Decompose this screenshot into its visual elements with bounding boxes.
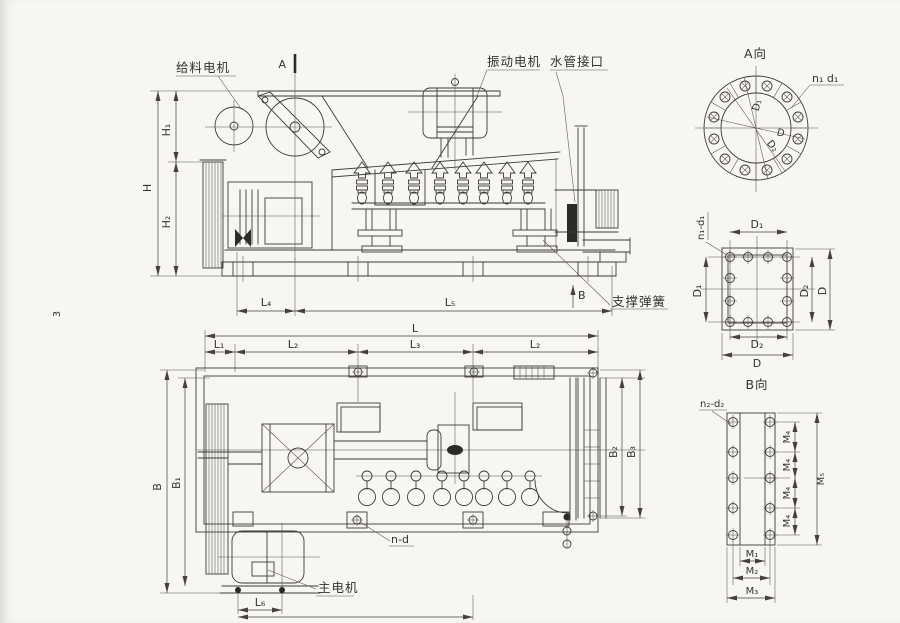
dim-B: B — [151, 483, 164, 491]
nozzle-row — [352, 162, 545, 209]
pipe-port-label: 水管接口 — [550, 54, 604, 69]
bolt-hole — [740, 81, 750, 91]
bolt-hole — [762, 81, 772, 91]
dim-D2-flange-a: D₂ — [764, 138, 780, 154]
nozzle — [406, 162, 422, 204]
side-elevation-view: A — [141, 54, 668, 316]
page-number: 3 — [52, 311, 63, 317]
bolt-hole — [723, 294, 737, 308]
nozzle — [476, 162, 492, 204]
bolt-hole — [793, 134, 803, 144]
dim-L6: L₆ — [255, 596, 266, 609]
dim-M5: M₅ — [816, 473, 827, 486]
section-line-a: A — [278, 54, 295, 260]
belt-guard — [200, 160, 226, 268]
vibration-motor-plan — [337, 403, 522, 473]
dim-M4: M₄ — [782, 431, 793, 444]
view-a-label: A向 — [744, 46, 767, 61]
dim-B2: B₂ — [607, 446, 620, 458]
dim-L: L — [412, 322, 419, 335]
holes-plan-label: n-d — [391, 533, 409, 546]
bolt-hole — [709, 112, 719, 122]
dim-D1-flange-a: D₁ — [751, 98, 765, 112]
bolt-hole — [761, 250, 775, 264]
drawing-sheet: A — [0, 0, 900, 623]
dim-M2: M₂ — [746, 566, 759, 577]
bolt-hole — [782, 92, 792, 102]
holes-plate-label: n₂-d₂ — [700, 399, 724, 410]
nozzle — [520, 162, 536, 204]
dim-M3: M₃ — [746, 586, 759, 597]
holes-flange-a-label: n₁ d₁ — [812, 72, 838, 85]
bolt-hole — [782, 154, 792, 164]
bolt-hole — [726, 501, 740, 515]
feeder-plan — [228, 424, 427, 492]
dim-D-flange-a: D — [776, 127, 786, 140]
dim-D1-left: D₁ — [691, 285, 704, 298]
section-b-label: B — [578, 289, 586, 302]
dim-D-bottom: D — [753, 357, 761, 370]
dim-L4: L₄ — [261, 296, 272, 309]
feed-motor-assembly — [205, 92, 332, 158]
dim-H2: H₂ — [160, 216, 173, 229]
discharge-end — [555, 126, 630, 262]
view-b-flange: n₁-d₁ D₁ D₁ D₂ D D₂ D B向 — [691, 212, 835, 392]
nozzle — [499, 162, 515, 204]
dim-H1: H₁ — [160, 124, 173, 137]
technical-drawing: A — [0, 0, 900, 623]
dim-L3: L₃ — [410, 338, 421, 351]
main-motor-label: 主电机 — [318, 580, 359, 595]
bolt-hole — [723, 250, 737, 264]
dim-M4: M₄ — [782, 487, 793, 500]
bolt-hole — [780, 315, 794, 329]
view-a-flange: A向 D₁ D D₂ n₁ d₁ — [695, 46, 844, 192]
bolt-hole — [726, 445, 740, 459]
bolt-hole — [761, 315, 775, 329]
base-frame — [222, 250, 616, 282]
bolt-hole — [726, 528, 740, 542]
dim-H: H — [141, 184, 154, 192]
bolt-hole — [709, 134, 719, 144]
vibration-motor-label: 振动电机 — [487, 54, 541, 69]
plan-top-dimensions: L L₁ L₂ L₃ L₂ — [205, 322, 598, 402]
bolt-hole — [720, 154, 730, 164]
mounting-tabs — [233, 366, 569, 528]
dim-D2-bottom: D₂ — [751, 338, 764, 351]
nozzle — [455, 162, 471, 204]
main-motor-plan: 主电机 — [218, 523, 359, 596]
bolt-hole — [723, 271, 737, 285]
dim-L2b: L₂ — [530, 338, 541, 351]
holes-flange-b-label: n₁-d₁ — [696, 216, 707, 240]
dim-M4: M₄ — [782, 515, 793, 528]
dim-B3: B₃ — [625, 446, 638, 458]
feed-hopper — [258, 91, 500, 205]
dim-D1-top: D₁ — [751, 218, 764, 231]
nozzle — [380, 162, 396, 204]
dim-D2-right: D₂ — [798, 285, 811, 298]
dim-L2: L₂ — [288, 338, 299, 351]
bolt-hole — [740, 165, 750, 175]
view-b-label: B向 — [745, 377, 768, 392]
bolt-mark — [587, 510, 599, 522]
vibration-motor — [408, 74, 502, 170]
dim-M4: M₄ — [782, 459, 793, 472]
bolt-plate-detail: n₂-d₂ M₄ M₄ M₄ M₄ M₅ M₁ M₂ M₃ — [699, 399, 827, 603]
bolt-mark — [587, 367, 599, 379]
bolt-hole — [780, 294, 794, 308]
plan-view: L L₁ L₂ L₃ L₂ — [151, 322, 645, 620]
dim-B1: B₁ — [170, 477, 183, 489]
bolt-hole — [780, 250, 794, 264]
bolt-hole — [762, 165, 772, 175]
dim-L1: L₁ — [214, 338, 225, 351]
bolt-hole — [741, 315, 755, 329]
bolt-hole — [723, 315, 737, 329]
bolt-hole — [793, 112, 803, 122]
spring-row-plan — [356, 471, 542, 506]
motor-dimensions: L₆ — [238, 594, 473, 620]
support-stands — [358, 209, 557, 252]
bolt-hole — [720, 92, 730, 102]
width-dimensions: B B₁ B₂ B₃ — [151, 370, 645, 593]
dim-M1: M₁ — [746, 549, 759, 560]
bolt-hole — [780, 271, 794, 285]
dim-L5: L₅ — [445, 296, 456, 309]
discharge-plan — [535, 367, 606, 548]
bolt-hole — [726, 471, 740, 485]
side-view-callouts: 给料电机 振动电机 水管接口 支撑弹簧 B — [176, 54, 668, 309]
drive-bearing-box — [222, 182, 320, 248]
section-a-label: A — [278, 58, 286, 71]
support-spring-label: 支撑弹簧 — [612, 294, 666, 309]
feed-motor-label: 给料电机 — [176, 60, 230, 75]
nd-callout: n-d — [360, 522, 414, 546]
bolt-hole — [741, 250, 755, 264]
dim-D-right: D — [816, 287, 829, 295]
belt-guard-plan — [198, 404, 228, 574]
